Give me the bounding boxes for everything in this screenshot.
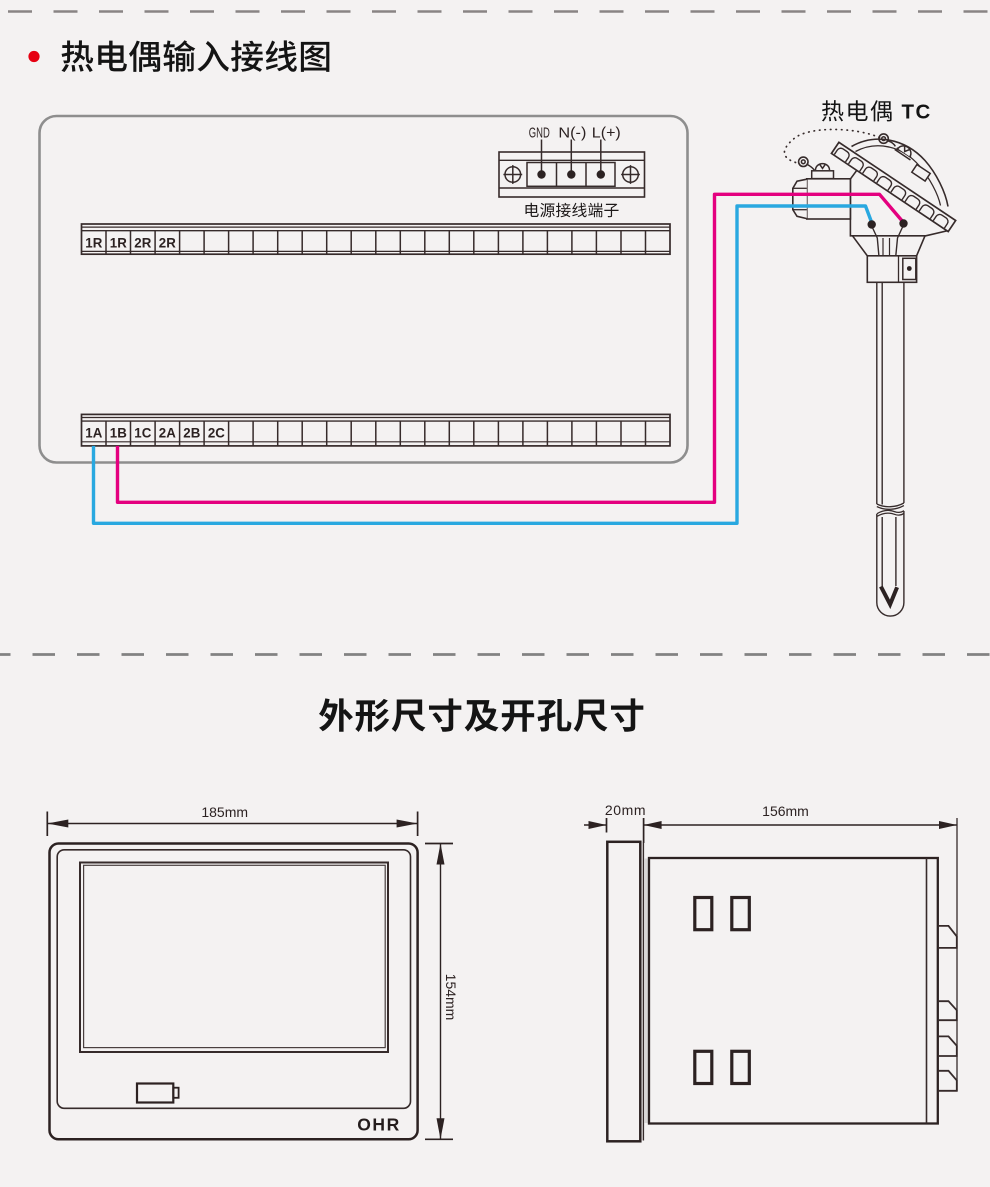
- svg-text:GND: GND: [529, 125, 550, 141]
- svg-text:OHR: OHR: [357, 1115, 400, 1135]
- svg-text:2B: 2B: [183, 425, 200, 441]
- svg-text:156mm: 156mm: [762, 803, 809, 819]
- svg-text:2R: 2R: [159, 234, 176, 250]
- svg-text:20mm: 20mm: [605, 802, 646, 818]
- svg-text:1A: 1A: [85, 425, 102, 441]
- svg-text:1C: 1C: [134, 425, 151, 441]
- svg-text:2C: 2C: [208, 425, 225, 441]
- svg-text:2A: 2A: [159, 425, 176, 441]
- svg-text:1R: 1R: [85, 234, 102, 250]
- svg-text:154mm: 154mm: [443, 974, 459, 1021]
- svg-text:TC: TC: [902, 101, 932, 124]
- svg-text:185mm: 185mm: [201, 804, 248, 820]
- svg-text:L(+): L(+): [592, 125, 621, 141]
- svg-text:1R: 1R: [110, 234, 127, 250]
- svg-text:2R: 2R: [134, 234, 151, 250]
- svg-text:1B: 1B: [110, 425, 127, 441]
- svg-text:N(-): N(-): [558, 125, 586, 141]
